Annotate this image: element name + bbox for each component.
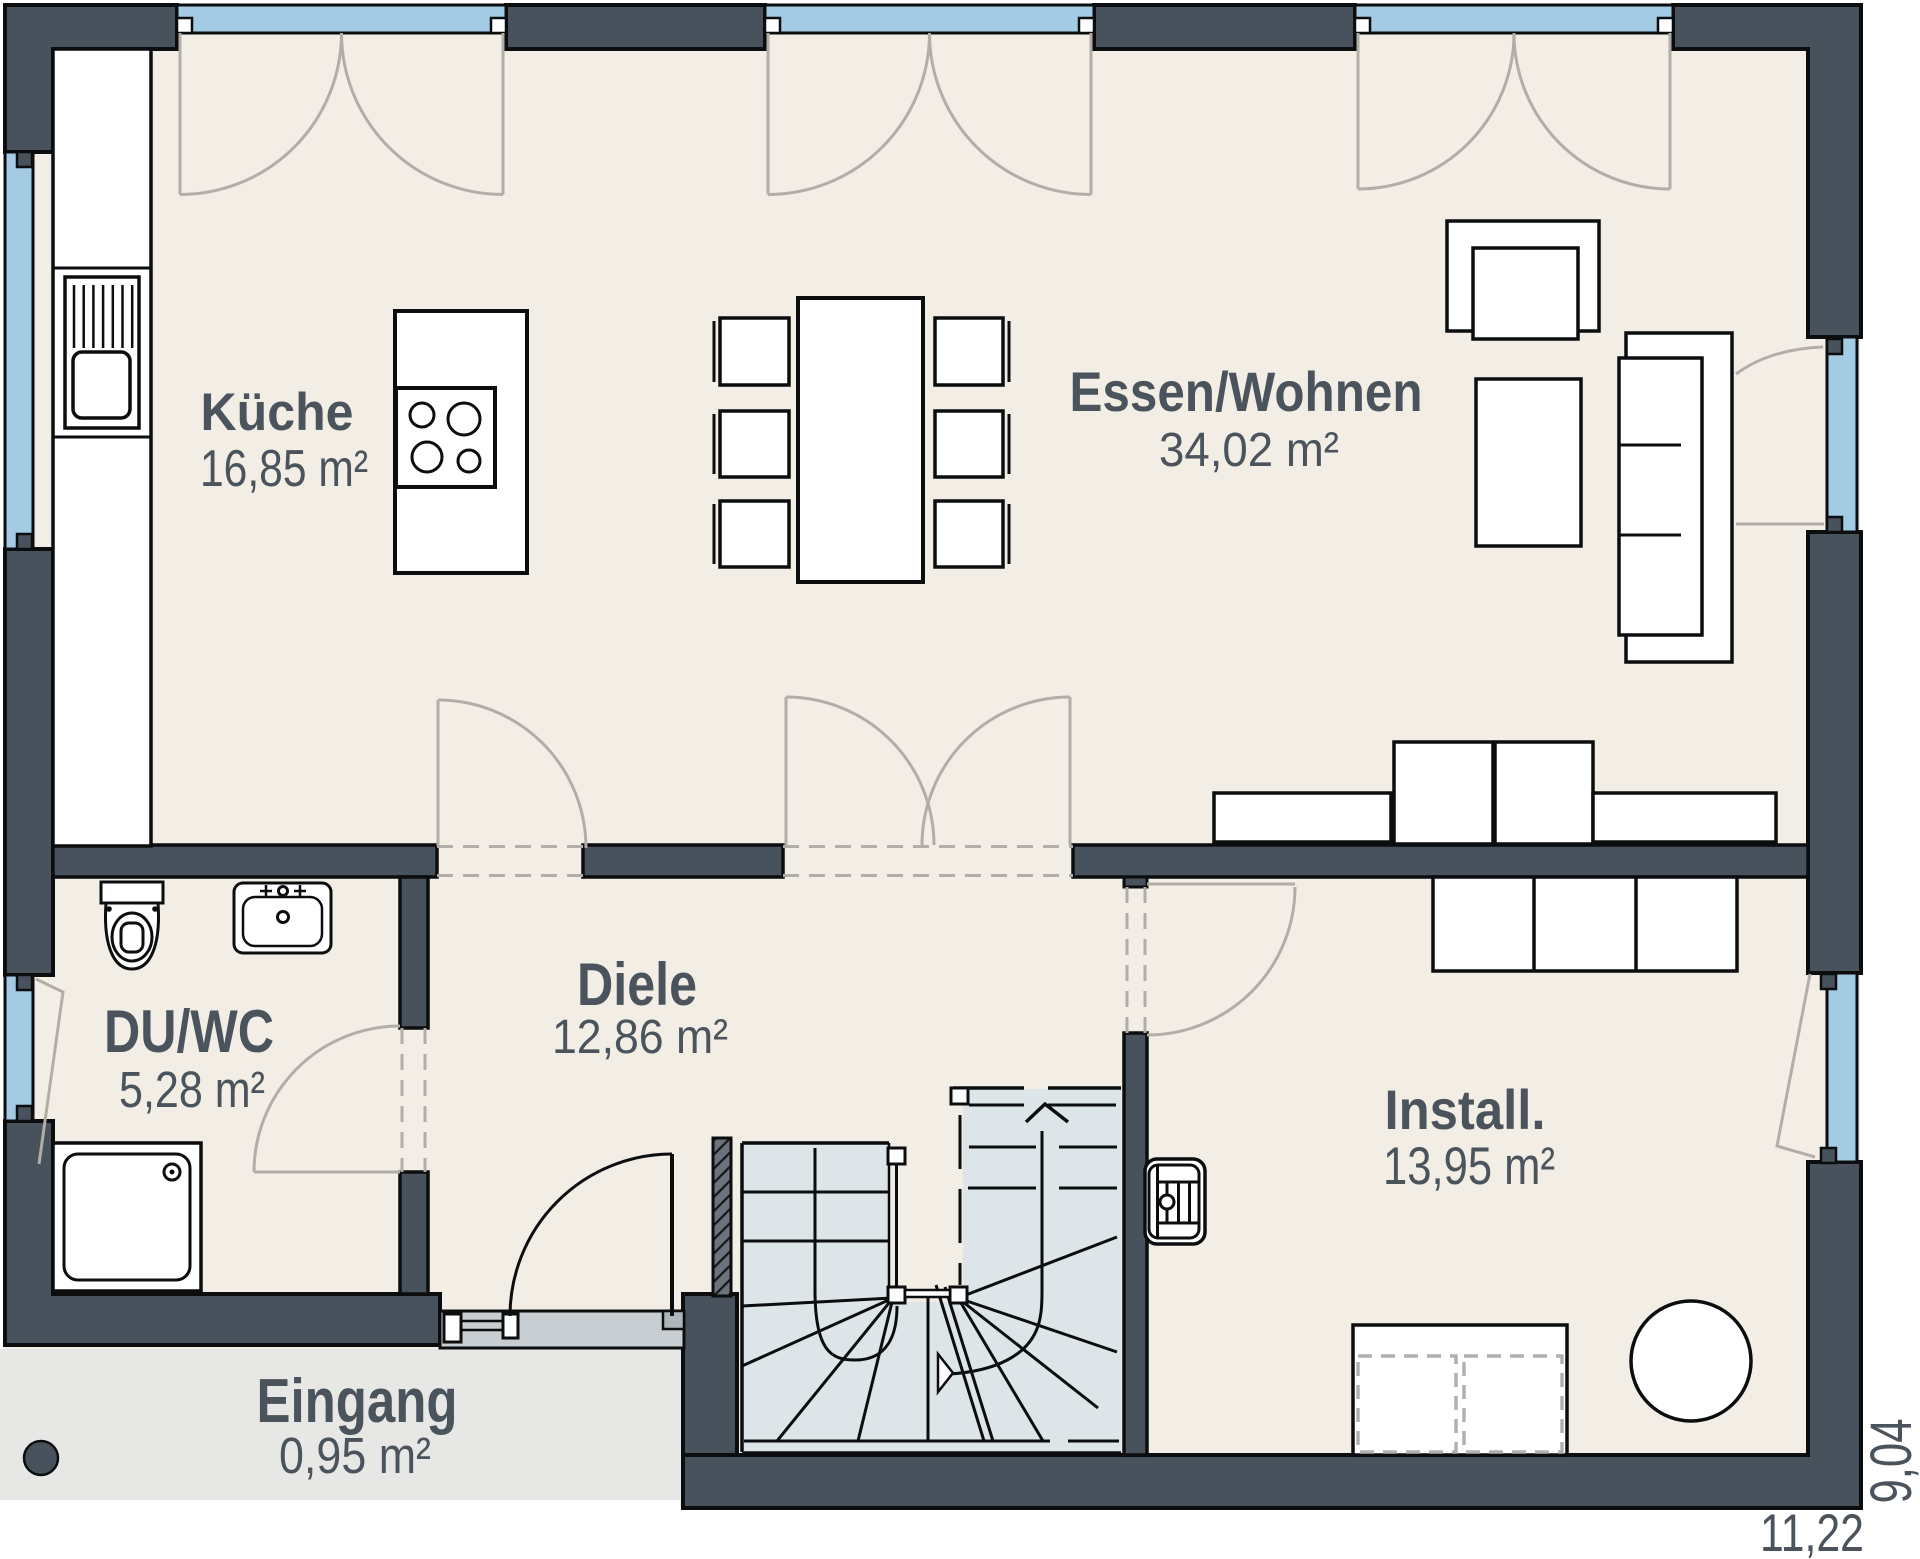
svg-text:16,85 m²: 16,85 m² [200, 440, 368, 498]
svg-text:Diele: Diele [577, 951, 697, 1018]
svg-text:5,28 m²: 5,28 m² [119, 1061, 265, 1118]
svg-text:13,95 m²: 13,95 m² [1383, 1137, 1555, 1196]
svg-text:34,02 m²: 34,02 m² [1159, 424, 1339, 477]
svg-text:9,04: 9,04 [1859, 1419, 1920, 1504]
svg-text:0,95 m²: 0,95 m² [279, 1427, 431, 1484]
svg-text:11,22: 11,22 [1760, 1504, 1864, 1559]
svg-text:Küche: Küche [201, 383, 354, 442]
svg-text:DU/WC: DU/WC [104, 998, 274, 1065]
svg-text:Essen/Wohnen: Essen/Wohnen [1070, 360, 1423, 423]
svg-text:Eingang: Eingang [257, 1367, 458, 1436]
svg-text:12,86 m²: 12,86 m² [552, 1011, 728, 1064]
svg-text:Install.: Install. [1385, 1078, 1546, 1141]
